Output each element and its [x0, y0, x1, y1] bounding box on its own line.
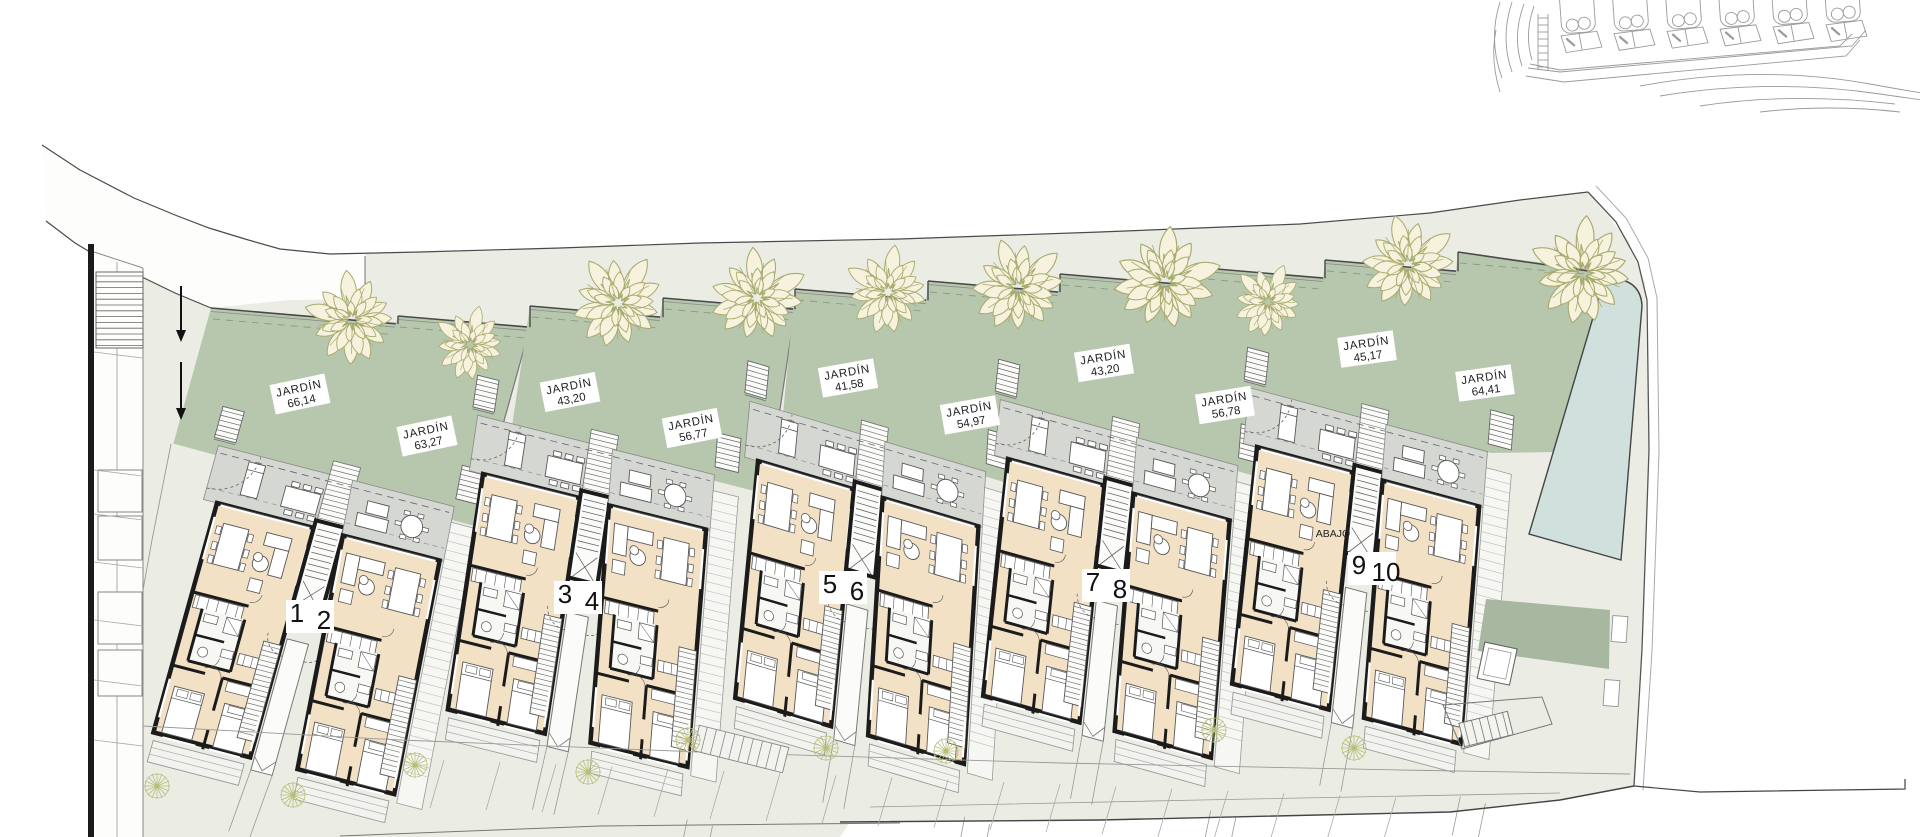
svg-text:9: 9 — [1352, 550, 1366, 580]
svg-text:5: 5 — [823, 569, 837, 599]
svg-text:8: 8 — [1113, 574, 1127, 604]
svg-text:1: 1 — [290, 598, 304, 628]
svg-text:10: 10 — [1372, 557, 1401, 587]
svg-text:ABAJO: ABAJO — [1316, 528, 1350, 540]
svg-text:2: 2 — [317, 605, 331, 635]
svg-text:6: 6 — [850, 576, 864, 606]
svg-text:3: 3 — [558, 579, 572, 609]
svg-text:7: 7 — [1086, 567, 1100, 597]
svg-text:4: 4 — [585, 586, 599, 616]
